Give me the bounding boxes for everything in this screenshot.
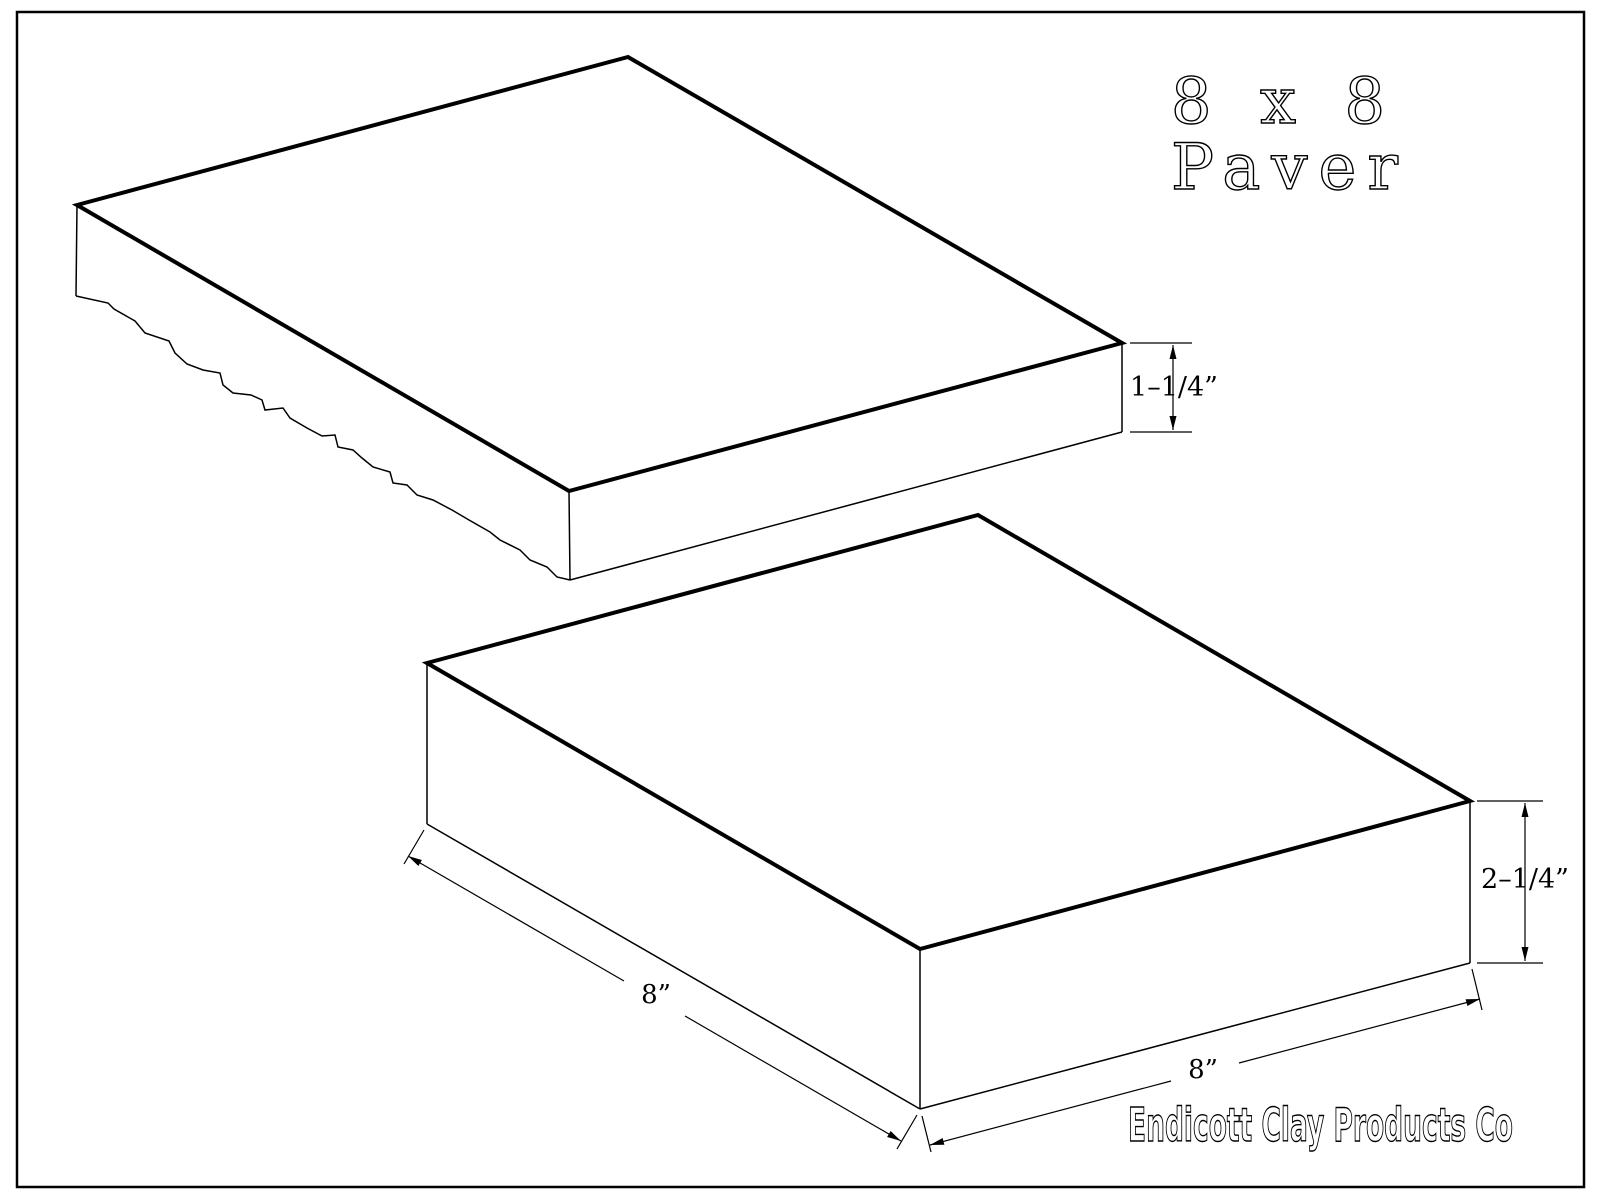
title-line-2: Paver <box>1171 131 1409 205</box>
bottom-paver-top-face <box>427 515 1470 949</box>
bottom-paver-thickness-label: 2–1/4” <box>1481 864 1569 895</box>
paver-spec-sheet: 1–1/4” 2–1/4” 8” <box>0 0 1600 1200</box>
drawing-title: 8 x 8 Paver <box>1171 65 1409 205</box>
title-line-1: 8 x 8 <box>1171 65 1399 139</box>
arrow-down-icon <box>1522 947 1529 961</box>
top-paver-top-face <box>77 57 1122 491</box>
top-paver-front-corner-edge <box>569 491 570 580</box>
arrow-up-icon <box>1522 803 1529 817</box>
extension-line-lower <box>897 1115 917 1149</box>
technical-drawing-canvas: 1–1/4” 2–1/4” 8” <box>0 0 1600 1200</box>
bottom-paver-thickness-dimension: 2–1/4” <box>1477 801 1569 963</box>
top-paver-thickness-dimension: 1–1/4” <box>1130 343 1218 432</box>
arrow-down-left-icon <box>930 1138 944 1145</box>
bottom-paver-left-width-label: 8” <box>641 980 671 1010</box>
dimension-line-segment <box>1239 999 1480 1063</box>
arrow-down-icon <box>1170 416 1177 430</box>
extension-line-right <box>1472 969 1482 1010</box>
top-paver-left-edge <box>76 205 77 296</box>
arrow-down-right-icon <box>887 1131 901 1141</box>
bottom-paver-right-width-label: 8” <box>1188 1055 1218 1085</box>
company-logo: Endicott Clay Products Co <box>1128 1098 1513 1152</box>
bottom-paver <box>427 515 1470 1109</box>
arrow-up-left-icon <box>408 856 422 866</box>
arrow-up-icon <box>1170 345 1177 359</box>
top-paver <box>76 57 1122 580</box>
arrow-up-right-icon <box>1466 999 1480 1006</box>
bottom-paver-right-face-bottom-edge <box>920 963 1470 1109</box>
extension-line-left <box>922 1116 931 1152</box>
top-paver-thickness-label: 1–1/4” <box>1130 372 1218 403</box>
